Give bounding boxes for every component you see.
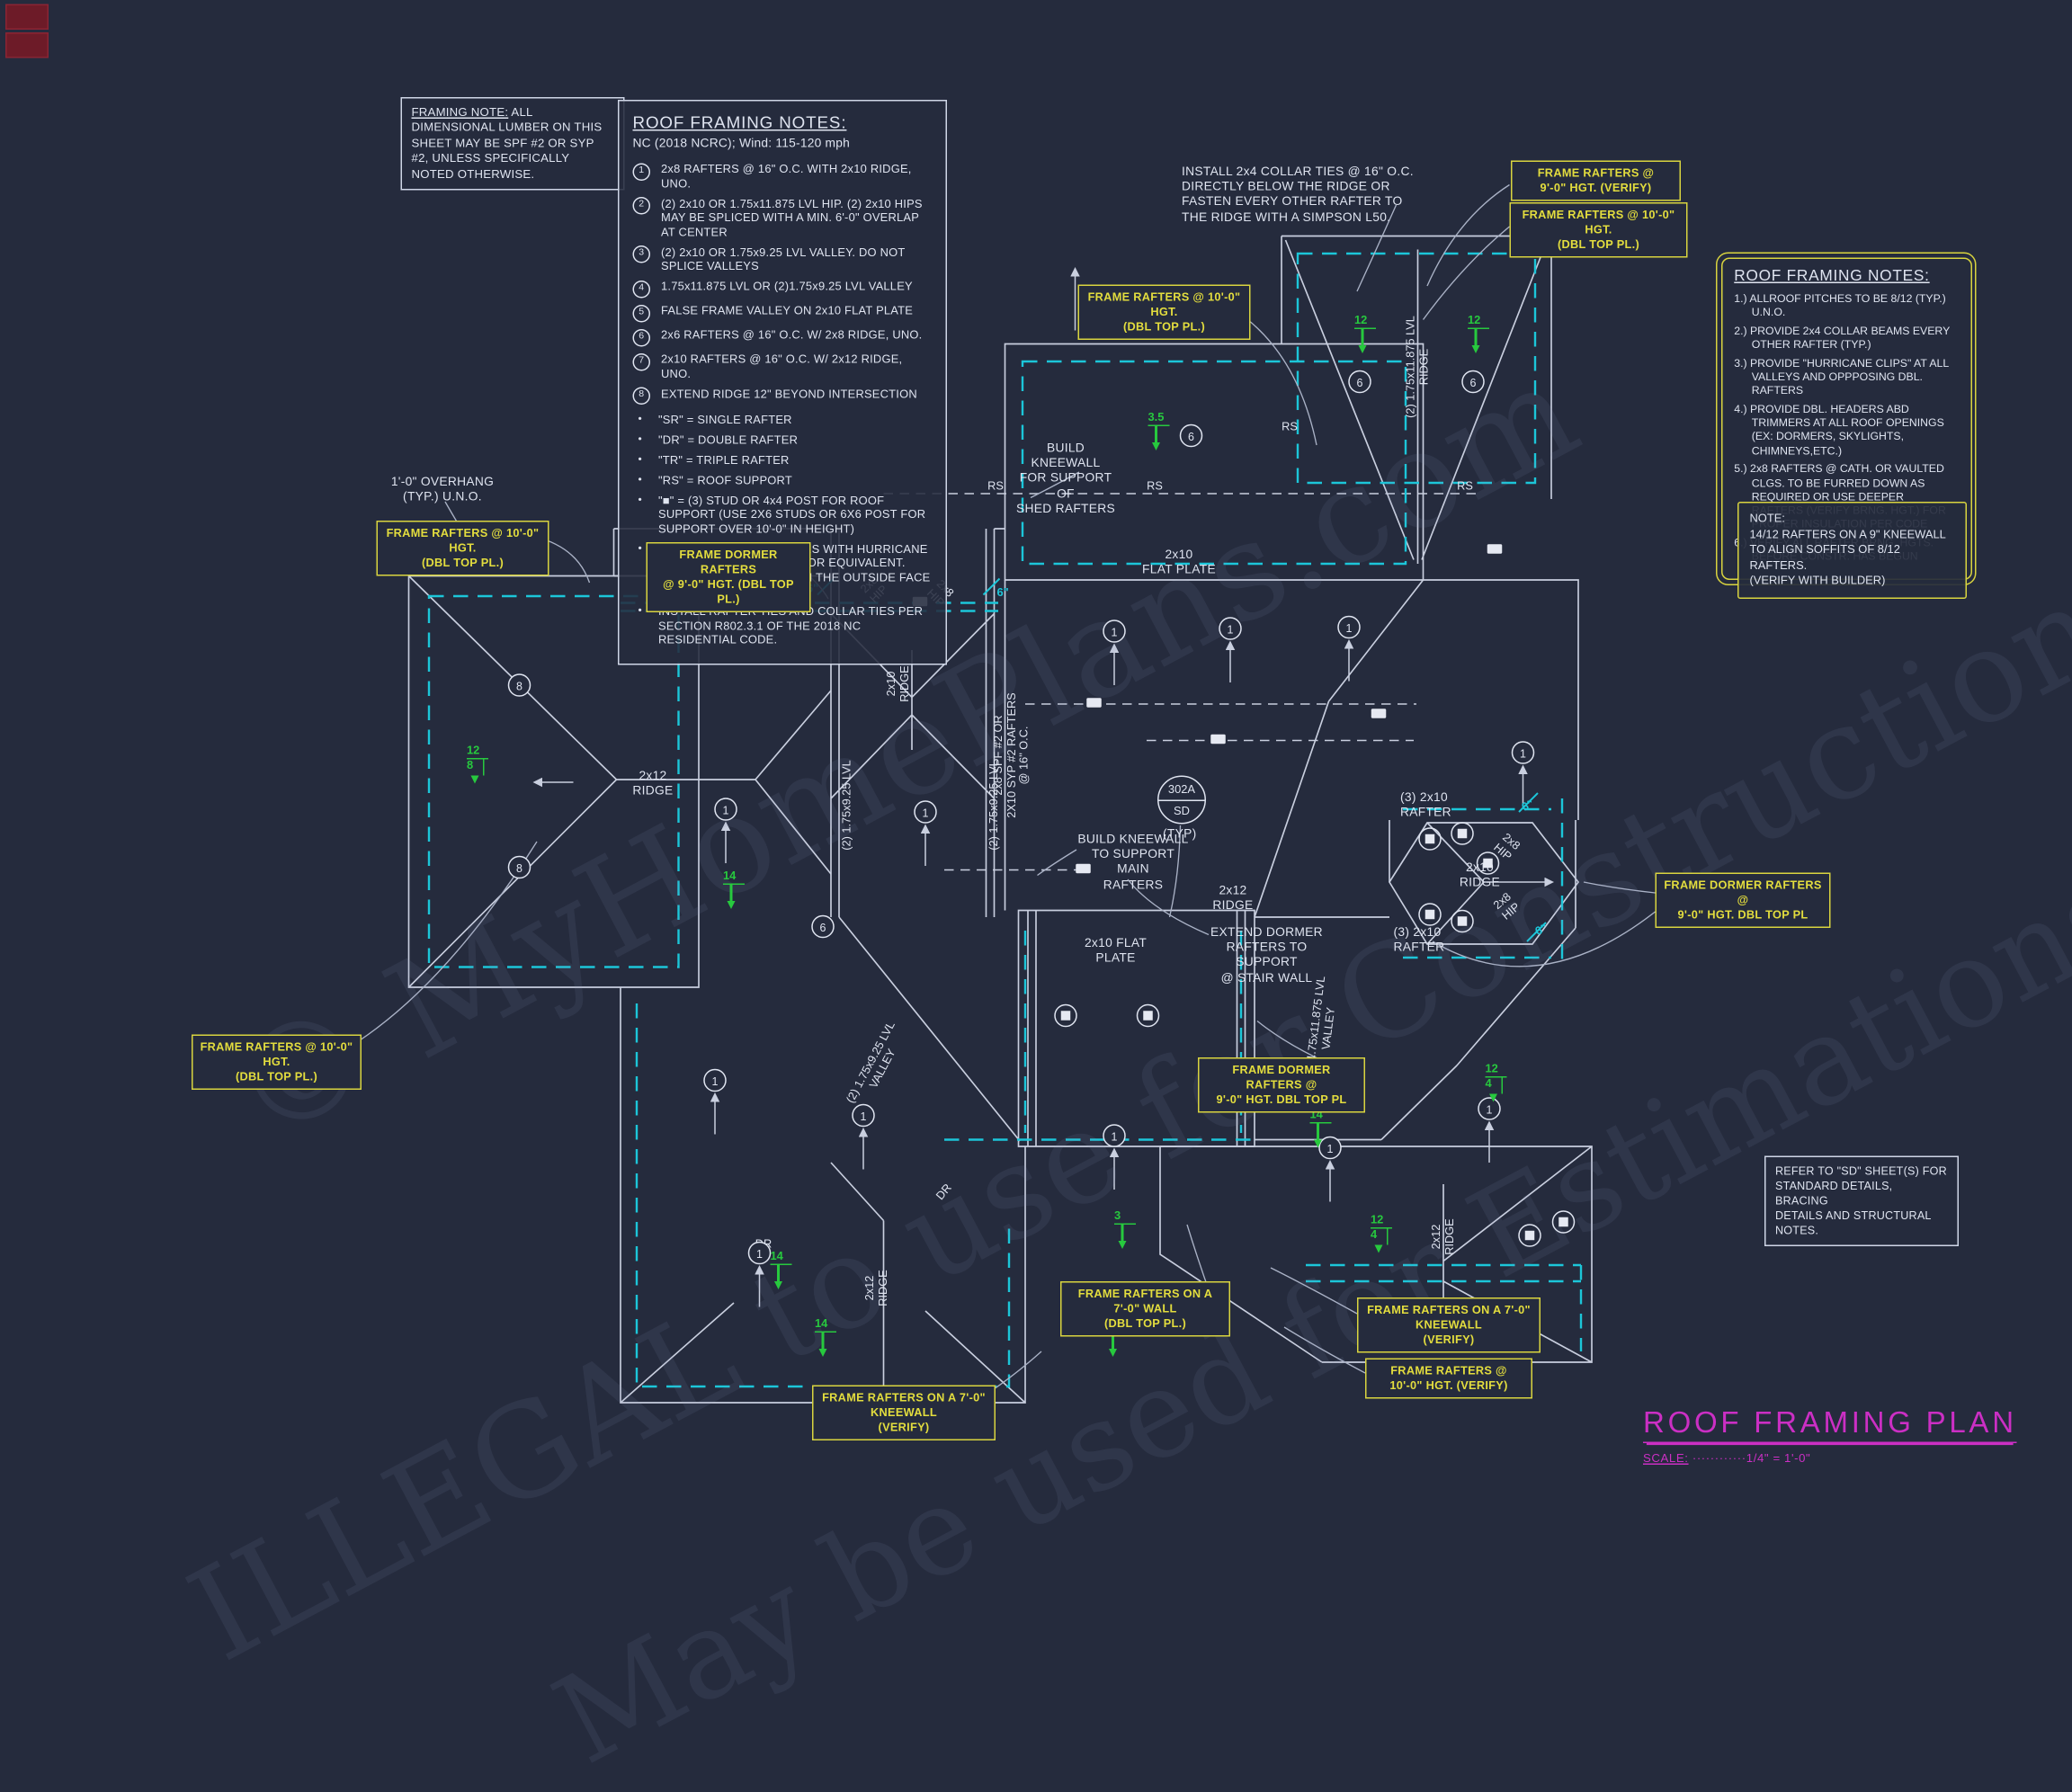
note-text: (2) 2x10 OR 1.75x9.25 LVL VALLEY. DO NOT… [661,245,933,272]
frame-height-label-line: 9'-0" HGT. DBL TOP PL [1205,1092,1359,1108]
pitch-arrow-line-icon [483,759,485,775]
plan-annotation: EXTEND DORMERRAFTERS TO SUPPORT@ STAIR W… [1202,925,1332,985]
roof-note-right-item: 4.) PROVIDE DBL. HEADERS ABD TRIMMERS AT… [1734,403,1958,459]
pitch-arrow-line-icon [1387,1228,1389,1244]
frame-height-label-line: FRAME RAFTERS ON A 7'-0" WALL [1067,1287,1224,1316]
frame-height-label-line: FRAME RAFTERS @ [1372,1364,1526,1379]
pitch-run: 12 [1468,315,1489,326]
plan-rotated-text: 2x12RIDGE [1431,1218,1457,1254]
frame-height-label-line: FRAME RAFTERS @ [1518,166,1675,182]
frame-height-label-line: FRAME RAFTERS @ 10'-0" HGT. [1516,208,1681,237]
frame-height-label-line: (VERIFY) [819,1421,989,1436]
framing-note-title: FRAMING NOTE: [412,105,509,119]
pitch-arrow-line-icon [1362,328,1363,344]
plan-annotation-line: DIRECTLY BELOW THE RIDGE OR [1182,180,1414,195]
plan-annotation-line: RIDGE [1201,898,1265,914]
plan-annotation-line: THE RIDGE WITH A SIMPSON L50. [1182,210,1414,225]
roof-support-post-icon [1418,827,1442,851]
keyed-note-number-icon: 1 [914,800,937,824]
bullet-icon: • [633,453,648,468]
plan-annotation-line: 2x10 FLAT [1076,936,1155,951]
plan-annotation-line: 2x12 [621,769,685,784]
roof-support-post-icon [1451,822,1474,845]
frame-height-label-line: (DBL TOP PL.) [1085,320,1244,335]
roof-support-post-icon [1054,1004,1077,1028]
pitch-marker: 124 [1371,1214,1392,1256]
rafter-code-mark: RS [987,479,1004,493]
plan-annotation-line: RAFTERS TO SUPPORT [1202,941,1332,971]
roof-support-post-icon [1477,851,1500,875]
frame-height-label-line: FRAME RAFTERS @ 10'-0" HGT. [1085,290,1244,320]
pitch-run: 12 [1371,1214,1392,1226]
plan-annotation-line: RAFTER [1400,806,1451,821]
pitch-row [815,1332,836,1348]
roof-note-numbered-item: 2(2) 2x10 OR 1.75x11.875 LVL HIP. (2) 2x… [633,197,933,239]
pitch-arrowhead-icon [1375,1244,1383,1257]
pitch-arrowhead-icon [1359,344,1367,357]
pitch-row [1148,425,1170,441]
note-text: FALSE FRAME VALLEY ON 2x10 FLAT PLATE [661,304,913,322]
sheet-title: ROOF FRAMING PLAN [1643,1405,2017,1443]
frame-height-label-line: @ 9'-0" HGT. (DBL TOP PL.) [653,577,804,607]
frame-height-label: FRAME DORMER RAFTERS @9'-0" HGT. DBL TOP… [1198,1057,1365,1113]
frame-height-label-line: 10'-0" HGT. (VERIFY) [1372,1378,1526,1394]
frame-height-label: FRAME RAFTERS @ 10'-0" HGT.(DBL TOP PL.) [192,1035,362,1091]
frame-height-label: FRAME RAFTERS ON A 7'-0" KNEEWALL(VERIFY… [812,1386,996,1441]
frame-height-label: FRAME RAFTERS ON A 7'-0" WALL(DBL TOP PL… [1060,1281,1230,1337]
frame-height-label-line: FRAME DORMER RAFTERS @ [1662,878,1824,908]
roof-support-post-icon [1518,1224,1541,1247]
roof-support-square-icon [1076,864,1091,874]
plan-rotated-text: (2) 1.75x9.25 LVL [841,760,853,850]
frame-height-label-line: (DBL TOP PL.) [199,1070,355,1085]
plan-rotated-line: (2) 1.75x9.25 LVL [987,760,1000,850]
frame-height-label-line: 9'-0" HGT. (VERIFY) [1518,181,1675,196]
pitch-row [1354,328,1376,344]
note-number-icon: 5 [633,304,651,322]
keyed-note-number-icon: 1 [852,1104,875,1128]
pitch-arrow-line-icon [730,884,732,900]
plan-annotation: BUILD KNEEWALLFOR SUPPORT OFSHED RAFTERS [1014,441,1119,517]
roof-note-numbered-item: 12x8 RAFTERS @ 16" O.C. WITH 2x10 RIDGE,… [633,162,933,190]
sd-reference-note-box: REFER TO "SD" SHEET(S) FORSTANDARD DETAI… [1764,1156,1959,1246]
pitch-row [1114,1224,1136,1240]
plan-annotation-line: 2x12 [1201,884,1265,899]
roof-support-post-icon [1552,1210,1576,1234]
note-number-icon: 1 [633,163,651,181]
roof-note-bullet-item: •"SR" = SINGLE RAFTER [633,413,933,427]
pitch-arrowhead-icon [1489,1093,1497,1106]
roof-note-bullet-item: •"■" = (3) STUD OR 4x4 POST FOR ROOF SUP… [633,494,933,536]
plan-annotation-line: 2x10 [1138,548,1221,563]
plan-rotated-line: 2x10 [886,665,898,701]
cyan-dimension-text: 6" [997,585,1009,599]
plan-annotation-line: 1'-0" OVERHANG [386,475,499,490]
frame-height-label-line: FRAME RAFTERS @ 10'-0" HGT. [199,1040,355,1070]
pitch-marker: 128 [467,744,488,787]
plan-annotation-line: SHED RAFTERS [1014,502,1119,517]
pitch-marker: 12 [1354,315,1376,357]
pitch-row [771,1264,792,1280]
plan-rotated-line: 2x12 [1431,1218,1443,1254]
plan-annotation-line: RIDGE [621,784,685,799]
frame-height-label-line: FRAME RAFTERS ON A 7'-0" KNEEWALL [819,1391,989,1421]
pitch-arrowhead-icon [471,775,479,788]
rafter-code-mark: RS [1457,479,1473,493]
note-text: 2x8 RAFTERS @ 16" O.C. WITH 2x10 RIDGE, … [661,162,933,190]
pitch-arrow-line-icon [777,1264,779,1280]
plan-annotation-line: RIDGE [1448,876,1513,891]
rafter-code-mark: RS [1282,420,1298,433]
keyed-note-number-icon: 1 [748,1242,772,1265]
plan-annotation-line: (TYP.) U.N.O. [386,490,499,505]
pitch-arrowhead-icon [1472,344,1480,357]
frame-height-label-line: (DBL TOP PL.) [383,556,542,571]
roof-support-post-icon [1418,903,1442,926]
plan-annotation-line: EXTEND DORMER [1202,925,1332,941]
roof-note-right-item: 1.) ALLROOF PITCHES TO BE 8/12 (TYP.) U.… [1734,292,1958,320]
sd-reference-note-text: REFER TO "SD" SHEET(S) FORSTANDARD DETAI… [1775,1164,1948,1238]
plan-annotation-line: PLATE [1076,951,1155,967]
plan-rotated-text: (2) 1.75x9.25 LVL [987,760,1000,850]
plan-annotation-line: FLAT PLATE [1138,563,1221,578]
note-number-icon: 4 [633,280,651,298]
roof-support-square-icon [1210,735,1226,744]
roof-framing-notes-title: ROOF FRAMING NOTES: [633,112,933,134]
plan-annotation: INSTALL 2x4 COLLAR TIES @ 16" O.C.DIRECT… [1182,165,1414,225]
frame-height-label-line: FRAME RAFTERS @ 10'-0" HGT. [383,526,542,556]
pitch-run: 12 [1486,1063,1507,1074]
frame-height-label: FRAME DORMER RAFTERS@ 9'-0" HGT. (DBL TO… [647,542,811,612]
roof-note-right-item: 2.) PROVIDE 2x4 COLLAR BEAMS EVERY OTHER… [1734,325,1958,352]
plan-annotation: (3) 2x10RAFTER [1400,790,1451,821]
roof-support-square-icon [1086,698,1102,708]
roof-note-numbered-item: 8EXTEND RIDGE 12" BEYOND INTERSECTION [633,387,933,405]
note-text: "DR" = DOUBLE RAFTER [658,433,798,448]
pitch-run: 12 [1354,315,1376,326]
plan-rotated-line: 2x12 [864,1270,877,1306]
sheet-corner-mark [5,32,49,58]
plan-annotation-line: (3) 2x10 [1394,925,1445,941]
frame-height-label-line: (VERIFY) [1364,1333,1534,1348]
kneewall-note-text: 14/12 RAFTERS ON A 9" KNEEWALLTO ALIGN S… [1750,527,1955,590]
pitch-run: 14 [815,1318,836,1330]
pitch-arrowhead-icon [1152,441,1160,454]
keyed-note-number-icon: 1 [1337,616,1361,639]
pitch-rise: 4 [1371,1228,1377,1240]
note-number-icon: 7 [633,352,651,370]
pitch-arrow-line-icon [822,1332,824,1348]
frame-height-label: FRAME RAFTERS @ 10'-0" HGT.(DBL TOP PL.) [1078,285,1251,341]
pitch-arrow-line-icon [1155,425,1157,441]
bullet-icon: • [633,474,648,488]
plan-rotated-line: RIDGE [1418,316,1431,418]
pitch-row: 4 [1486,1077,1507,1093]
roof-note-bullet-item: •"TR" = TRIPLE RAFTER [633,453,933,468]
frame-height-label: FRAME RAFTERS @9'-0" HGT. (VERIFY) [1511,161,1681,201]
roof-note-numbered-item: 72x10 RAFTERS @ 16" O.C. W/ 2x12 RIDGE, … [633,352,933,380]
title-block: ROOF FRAMING PLAN SCALE: ············1/4… [1643,1405,2017,1465]
frame-height-label-line: FRAME DORMER RAFTERS @ [1205,1063,1359,1092]
note-text: 2x6 RAFTERS @ 16" O.C. W/ 2x8 RIDGE, UNO… [661,328,922,346]
pitch-marker: 14 [771,1251,792,1293]
plan-rotated-text: 2x10RIDGE [886,665,912,701]
kneewall-note-line: (VERIFY WITH BUILDER) [1750,574,1955,589]
pitch-marker: 14 [815,1318,836,1360]
frame-height-label-line: FRAME DORMER RAFTERS [653,548,804,577]
plan-annotation: 2x12RIDGE [621,769,685,799]
scale-dots: ············ [1689,1451,1746,1465]
frame-height-label: FRAME RAFTERS @ 10'-0" HGT.(DBL TOP PL.) [377,521,549,576]
scale-value: 1/4" = 1'-0" [1746,1451,1811,1465]
roof-note-numbered-item: 41.75x11.875 LVL OR (2)1.75x9.25 LVL VAL… [633,280,933,298]
keyed-note-number-icon: 6 [1180,424,1203,448]
plan-rotated-line: RIDGE [898,665,911,701]
plan-rotated-line: RIDGE [1443,1218,1456,1254]
plan-annotation: (3) 2x10RAFTER [1394,925,1445,956]
note-text: "SR" = SINGLE RAFTER [658,413,792,427]
plan-annotation-line: TO SUPPORT MAIN [1076,847,1190,878]
plan-annotation-line: FOR SUPPORT OF [1014,471,1119,502]
pitch-arrowhead-icon [1314,1139,1322,1152]
note-text: "■" = (3) STUD OR 4x4 POST FOR ROOF SUPP… [658,494,933,536]
keyed-note-number-icon: 1 [1219,617,1242,640]
pitch-rise: 4 [1486,1077,1492,1089]
pitch-run: 3.5 [1148,412,1170,423]
plan-rotated-line: @ 16" O.C. [1018,692,1031,817]
rafter-code-mark: RS [1147,479,1163,493]
detail-bubble: 302A SD [1157,776,1206,825]
frame-height-label-line: (DBL TOP PL.) [1516,237,1681,253]
pitch-row: 8 [467,759,488,775]
pitch-marker: 14 [723,870,745,913]
keyed-note-number-icon: 1 [714,798,737,821]
pitch-run: 14 [771,1251,792,1262]
pitch-row [723,884,745,900]
pitch-arrowhead-icon [1119,1240,1127,1253]
plan-rotated-line: RIDGE [877,1270,889,1306]
plan-annotation-line: RAFTERS [1076,878,1190,893]
plan-rotated-line: (2) 1.75x9.25 LVL [841,760,853,850]
kneewall-note-box: NOTE: 14/12 RAFTERS ON A 9" KNEEWALLTO A… [1737,502,1967,599]
keyed-note-number-icon: 8 [508,673,531,697]
note-text: "RS" = ROOF SUPPORT [658,474,792,488]
pitch-arrowhead-icon [728,900,736,913]
roof-note-bullet-item: •"DR" = DOUBLE RAFTER [633,433,933,448]
pitch-run: 14 [723,870,745,882]
plan-rotated-line: (2) 1.75x11.875 LVL [1405,316,1417,418]
kneewall-note-title: NOTE: [1750,512,1955,527]
note-number-icon: 6 [633,328,651,346]
pitch-marker: 3.5 [1148,412,1170,454]
detail-bubble-sheet: SD [1159,801,1205,822]
kneewall-note-line: TO ALIGN SOFFITS OF 8/12 RAFTERS. [1750,542,1955,574]
kneewall-note-line: 14/12 RAFTERS ON A 9" KNEEWALL [1750,527,1955,542]
sd-note-line: REFER TO "SD" SHEET(S) FOR [1775,1164,1948,1179]
plan-annotation-line: INSTALL 2x4 COLLAR TIES @ 16" O.C. [1182,165,1414,180]
frame-height-label: FRAME RAFTERS @10'-0" HGT. (VERIFY) [1365,1359,1532,1399]
pitch-arrow-line-icon [1121,1224,1123,1240]
scale-label: SCALE: [1643,1451,1689,1465]
pitch-marker: 3 [1114,1210,1136,1253]
sd-note-line: DETAILS AND STRUCTURAL NOTES. [1775,1208,1948,1238]
note-text: EXTEND RIDGE 12" BEYOND INTERSECTION [661,387,917,405]
roof-support-square-icon [1371,709,1387,718]
roof-note-numbered-item: 3(2) 2x10 OR 1.75x9.25 LVL VALLEY. DO NO… [633,245,933,272]
pitch-arrow-line-icon [1501,1077,1503,1093]
keyed-note-number-icon: 1 [1512,741,1535,764]
detail-bubble-typ: (TYP) [1163,827,1197,843]
plan-annotation: 2x10 FLATPLATE [1076,936,1155,967]
sheet-corner-mark [5,4,49,31]
pitch-run: 12 [467,744,488,756]
roof-support-post-icon [1137,1004,1160,1028]
plan-annotation-line: @ STAIR WALL [1202,970,1332,985]
note-text: 2x10 RAFTERS @ 16" O.C. W/ 2x12 RIDGE, U… [661,352,933,380]
pitch-arrowhead-icon [774,1280,782,1293]
pitch-arrowhead-icon [1109,1348,1117,1360]
bullet-icon: • [633,433,648,448]
pitch-arrowhead-icon [819,1348,827,1360]
plan-annotation-line: BUILD KNEEWALL [1014,441,1119,472]
bullet-icon: • [633,494,648,536]
pitch-row: 4 [1371,1228,1392,1244]
sheet-scale: SCALE: ············1/4" = 1'-0" [1643,1451,2017,1465]
roof-note-bullet-item: •"RS" = ROOF SUPPORT [633,474,933,488]
plan-annotation: 1'-0" OVERHANG(TYP.) U.N.O. [386,475,499,505]
keyed-note-number-icon: 8 [508,856,531,879]
pitch-row [1310,1123,1332,1139]
pitch-arrow-line-icon [1317,1123,1318,1139]
keyed-note-number-icon: 1 [703,1069,727,1092]
pitch-row [1468,328,1489,344]
pitch-marker: 12 [1468,315,1489,357]
sd-note-line: STANDARD DETAILS, BRACING [1775,1179,1948,1208]
keyed-note-number-icon: 1 [1103,620,1126,643]
roof-note-numbered-item: 5FALSE FRAME VALLEY ON 2x10 FLAT PLATE [633,304,933,322]
keyed-note-number-icon: 6 [811,915,835,939]
frame-height-label: FRAME RAFTERS ON A 7'-0" KNEEWALL(VERIFY… [1357,1297,1541,1353]
pitch-marker: 14 [1310,1109,1332,1151]
plan-annotation-line: FASTEN EVERY OTHER RAFTER TO [1182,195,1414,210]
plan-rotated-text: (2) 1.75x11.875 LVLRIDGE [1405,316,1431,418]
framing-note-box: FRAMING NOTE: ALL DIMENSIONAL LUMBER ON … [401,97,625,191]
note-text: (2) 2x10 OR 1.75x11.875 LVL HIP. (2) 2x1… [661,197,933,239]
plan-annotation-line: RAFTER [1394,941,1445,956]
roof-framing-notes-subtitle: NC (2018 NCRC); Wind: 115-120 mph [633,137,933,153]
blueprint-sheet: © MyHomePlans.comILLEGAL to use for Cons… [0,0,2072,1554]
detail-bubble-number: 302A [1159,777,1205,801]
pitch-marker: 124 [1486,1063,1507,1105]
keyed-note-number-icon: 6 [1461,370,1485,394]
frame-height-label: FRAME DORMER RAFTERS @9'-0" HGT. DBL TOP… [1656,873,1831,929]
plan-annotation: 2x12RIDGE [1201,884,1265,914]
plan-annotation-line: (3) 2x10 [1400,790,1451,806]
keyed-note-number-icon: 6 [1348,370,1371,394]
roof-framing-notes-numbered-list: 12x8 RAFTERS @ 16" O.C. WITH 2x10 RIDGE,… [633,162,933,405]
note-number-icon: 2 [633,197,651,215]
frame-height-label-line: 9'-0" HGT. DBL TOP PL [1662,908,1824,923]
frame-height-label-line: (DBL TOP PL.) [1067,1316,1224,1332]
roof-support-post-icon [1451,910,1474,933]
note-text: "TR" = TRIPLE RAFTER [658,453,790,468]
plan-annotation: 2x10FLAT PLATE [1138,548,1221,578]
frame-height-label: FRAME RAFTERS @ 10'-0" HGT.(DBL TOP PL.) [1510,202,1688,258]
keyed-note-number-icon: 1 [1103,1124,1126,1147]
bullet-icon: • [633,413,648,427]
roof-note-right-item: 3.) PROVIDE "HURRICANE CLIPS" AT ALL VAL… [1734,357,1958,398]
roof-framing-notes-right-title: ROOF FRAMING NOTES: [1734,268,1958,284]
pitch-arrow-line-icon [1475,328,1477,344]
roof-support-square-icon [1487,544,1503,554]
pitch-run: 3 [1114,1210,1136,1222]
plan-rotated-text: 2x12RIDGE [864,1270,890,1306]
note-text: 1.75x11.875 LVL OR (2)1.75x9.25 LVL VALL… [661,280,913,298]
roof-note-numbered-item: 62x6 RAFTERS @ 16" O.C. W/ 2x8 RIDGE, UN… [633,328,933,346]
pitch-rise: 8 [467,759,473,771]
note-number-icon: 3 [633,245,651,263]
note-number-icon: 8 [633,388,651,406]
frame-height-label-line: FRAME RAFTERS ON A 7'-0" KNEEWALL [1364,1303,1534,1333]
